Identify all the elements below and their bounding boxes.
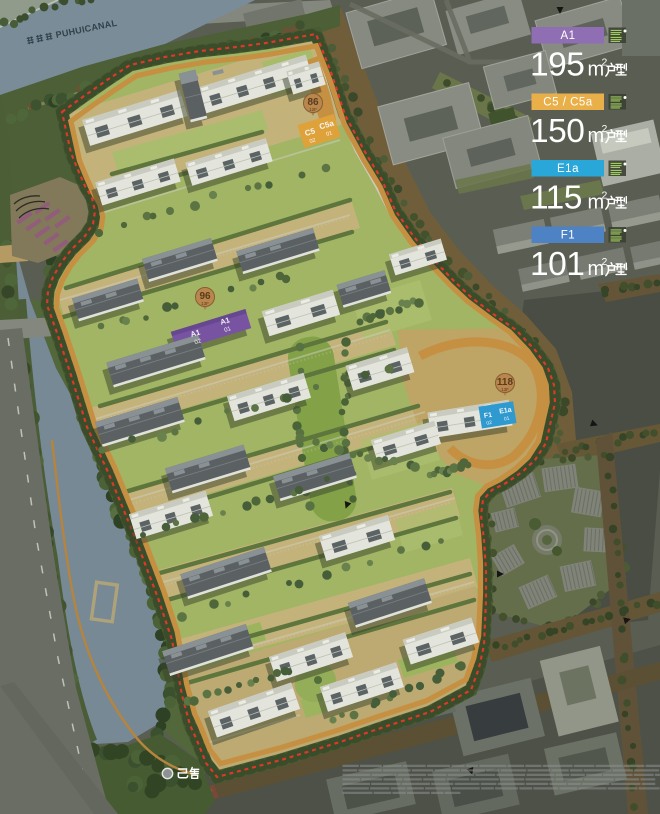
svg-text:195: 195: [530, 47, 584, 84]
svg-text:115: 115: [530, 180, 582, 217]
svg-text:F1: F1: [561, 230, 575, 242]
svg-text:A1: A1: [560, 30, 575, 42]
svg-text:C5 / C5a: C5 / C5a: [543, 97, 592, 109]
svg-text:150: 150: [530, 113, 584, 150]
svg-text:E1a: E1a: [557, 163, 579, 175]
svg-text:101: 101: [530, 246, 584, 283]
